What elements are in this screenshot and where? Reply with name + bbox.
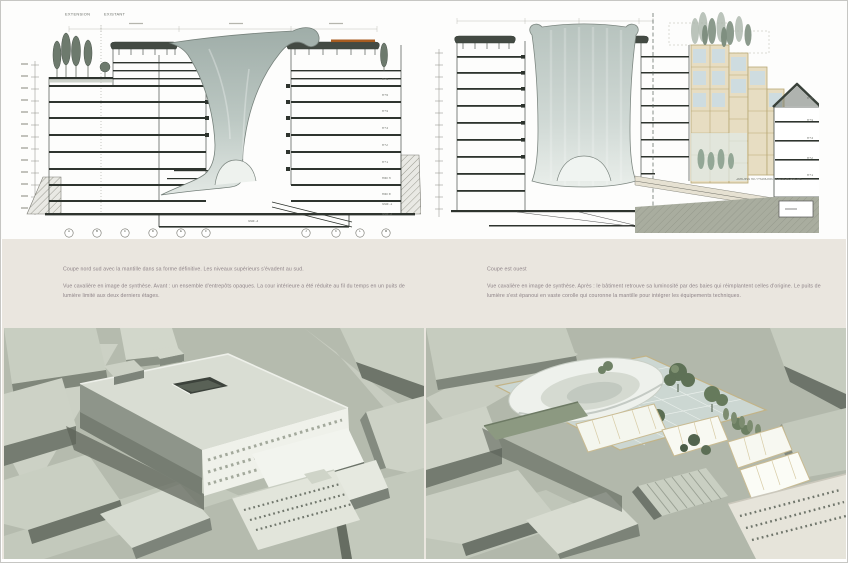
grid-label: D [149,230,157,233]
stepped-facade [691,45,784,183]
grid-label: C [121,230,129,233]
floor-label: R+4 [807,119,813,122]
caption-left-body: Vue cavalière en image de synthèse. Avan… [63,282,415,300]
floor-label: Ssol -2 [382,213,392,216]
grid-label: M [382,230,390,233]
floor-label: Rdc b [382,193,391,196]
floor-label: R+3 [382,127,388,130]
caption-right-body: Vue cavalière en image de synthèse. Aprè… [487,282,839,300]
grid-label: B [93,230,101,233]
caption-band: Coupe nord sud avec la mantille dans sa … [2,239,846,328]
caption-left: Coupe nord sud avec la mantille dans sa … [63,265,415,300]
grid-label: L [356,230,364,233]
floor-label: R+2 [807,157,813,160]
floor-label: R+5 [382,94,388,97]
grid-label: J [302,230,310,233]
floor-label: R+1 [807,174,813,177]
basement-ramp [517,212,637,227]
grid-label: A [65,230,73,233]
left-embankment [27,177,61,214]
street-annotation: JARDINS 90 / PIGNONS 38 RUE BLANCHE [736,178,802,181]
floor-label: Ssol -1 [382,203,392,206]
label-existant: EXISTANT [104,13,125,17]
floor-label: R+5 [807,97,813,100]
grid-label: F [202,230,210,233]
right-embankment [401,155,421,214]
ground-mass [635,197,819,233]
section-drawings-row: EXTENSION EXISTANT A B C D E F J K L M R… [1,1,847,239]
section-north-south-svg [9,9,421,239]
basement-label: Ssol -3 [248,220,258,223]
floor-label: Rdc h [382,177,391,180]
renders-row [2,328,846,559]
presentation-board: EXTENSION EXISTANT A B C D E F J K L M R… [0,0,848,563]
section-east-west-svg [429,9,819,239]
orange-roof-strip [331,40,375,43]
grid-label: K [332,230,340,233]
dimension-line [69,24,377,33]
floor-label: R+1 [382,161,388,164]
section-drawing-east-west [429,9,819,239]
level-scale [435,49,443,217]
caption-right-title: Coupe est ouest [487,265,839,274]
section-drawing-north-south [9,9,421,239]
grid-bubbles [65,229,390,237]
grid-label: E [177,230,185,233]
render-after [426,328,846,559]
floor-label: R+6 [382,78,388,81]
caption-left-title: Coupe nord sud avec la mantille dans sa … [63,265,415,274]
floor-label: R+4 [382,110,388,113]
floor-label: R+2 [382,144,388,147]
caption-right: Coupe est ouest Vue cavalière en image d… [487,265,839,300]
floor-label: R+3 [807,137,813,140]
render-before [4,328,424,559]
dimension-line [457,18,653,24]
label-extension: EXTENSION [65,13,90,17]
